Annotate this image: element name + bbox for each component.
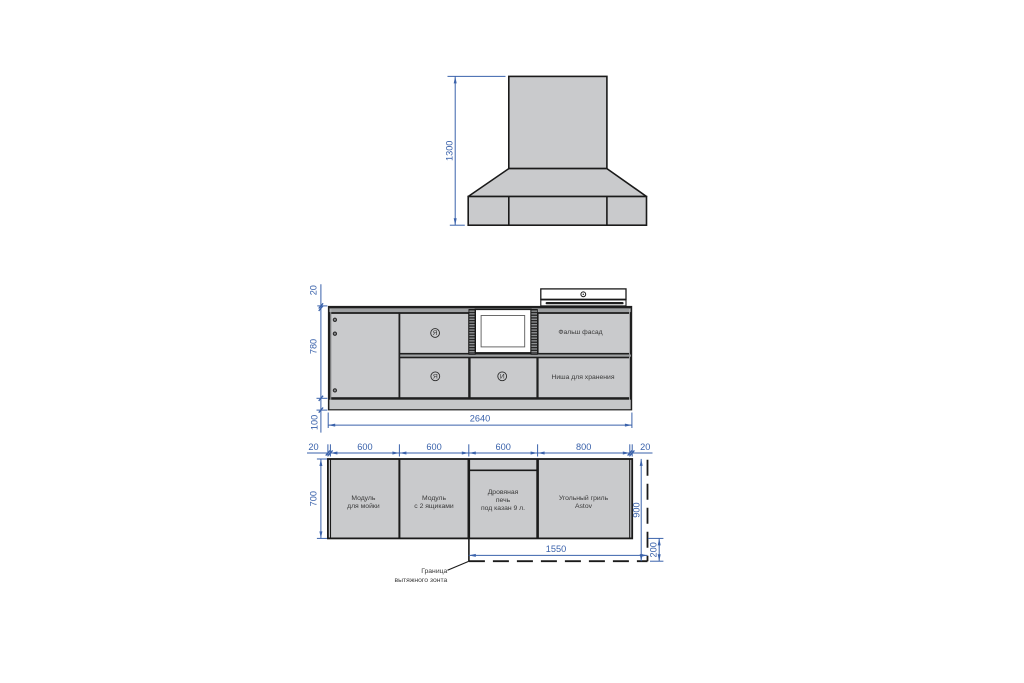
svg-text:780: 780 — [308, 339, 318, 354]
svg-text:200: 200 — [648, 542, 658, 557]
svg-text:печь: печь — [496, 497, 511, 504]
svg-text:вытяжного зонта: вытяжного зонта — [395, 577, 448, 584]
svg-text:1550: 1550 — [546, 544, 566, 554]
svg-text:20: 20 — [308, 442, 318, 452]
svg-text:600: 600 — [496, 442, 511, 452]
svg-text:Я: Я — [433, 374, 438, 381]
svg-text:Ниша для хранения: Ниша для хранения — [551, 374, 614, 381]
svg-text:Astov: Astov — [575, 503, 593, 510]
svg-text:Модуль: Модуль — [422, 495, 447, 502]
svg-text:600: 600 — [357, 442, 372, 452]
svg-text:20: 20 — [308, 285, 318, 295]
svg-text:800: 800 — [576, 442, 591, 452]
svg-text:900: 900 — [631, 502, 641, 517]
svg-text:2640: 2640 — [470, 414, 490, 424]
svg-text:для мойки: для мойки — [347, 502, 380, 510]
svg-text:20: 20 — [640, 442, 650, 452]
svg-text:Граница: Граница — [421, 568, 447, 575]
svg-text:И: И — [500, 374, 505, 381]
svg-text:100: 100 — [310, 415, 320, 430]
svg-text:1300: 1300 — [445, 141, 455, 161]
svg-text:Я: Я — [433, 330, 438, 337]
svg-text:600: 600 — [426, 442, 441, 452]
svg-text:Дровяная: Дровяная — [488, 489, 519, 496]
svg-text:Угольный гриль: Угольный гриль — [559, 494, 609, 502]
svg-text:под казан 9 л.: под казан 9 л. — [481, 505, 525, 512]
svg-text:Модуль: Модуль — [351, 495, 376, 502]
svg-text:700: 700 — [308, 491, 318, 506]
svg-text:с 2 ящиками: с 2 ящиками — [414, 503, 454, 510]
svg-text:Фальш фасад: Фальш фасад — [558, 329, 602, 336]
